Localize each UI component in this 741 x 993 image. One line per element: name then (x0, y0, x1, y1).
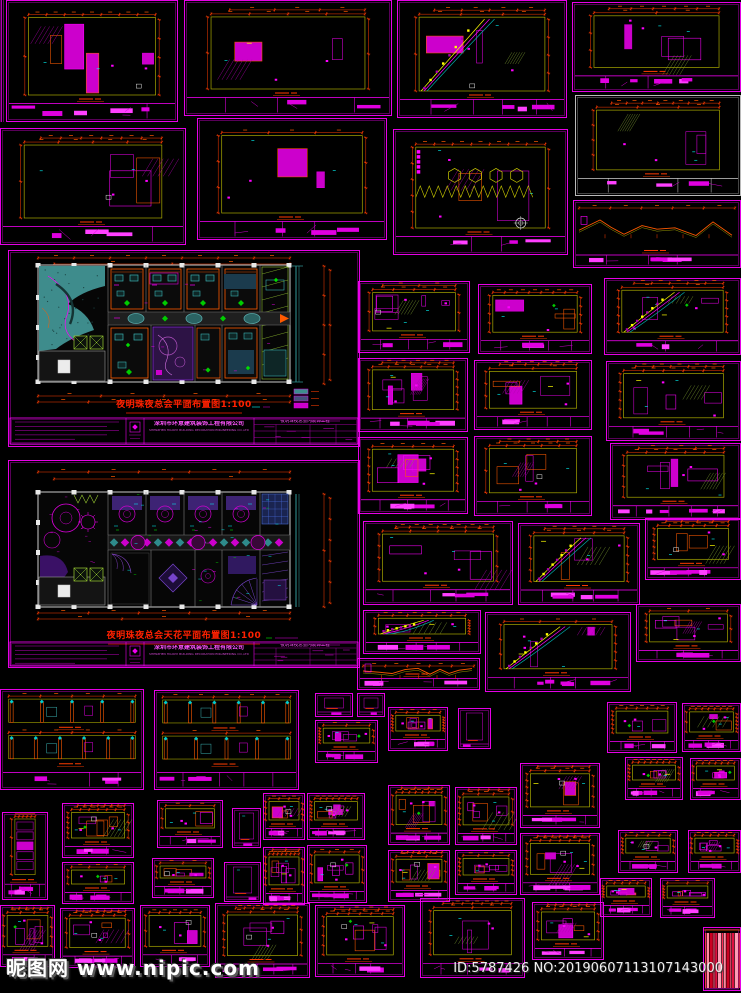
cad-sheet-swatch (703, 927, 741, 991)
cad-sheet-elev (625, 757, 683, 800)
cad-sheet-elev (606, 361, 741, 441)
plan2-title: 夜明珠夜总会天花平面布置图1:100 (8, 632, 360, 641)
cad-sheet-elev (636, 604, 741, 662)
cad-sheet-elev (363, 521, 513, 605)
cad-sheet-tiny (357, 693, 385, 717)
nipic-watermark: 昵图网www.nipic.com (6, 952, 260, 981)
nipic-site-name: 昵图网 (6, 956, 69, 980)
cad-sheet-section (573, 200, 741, 268)
cad-sheet-elev (315, 720, 378, 763)
cad-sheet-elev (610, 443, 741, 520)
image-id-watermark: ID:5787426 NO:20190607113107143000 (453, 961, 723, 976)
cad-sheet-elev (6, 0, 178, 122)
cad-sheet-elev (197, 118, 387, 240)
cad-sheet-elev (645, 518, 741, 580)
cad-sheet-tiny (232, 808, 261, 848)
cad-sheet-elev (388, 785, 450, 845)
cad-sheet-long2 (0, 689, 144, 790)
cad-sheet-elev (455, 850, 517, 895)
cad-sheet-tall (2, 812, 48, 900)
cad-sheet-elev (358, 281, 470, 353)
cad-sheet-elev (0, 128, 186, 245)
cad-sheet-elev (358, 358, 468, 432)
cad-sheet-elev (682, 703, 741, 752)
cad-sheet-tiny (224, 862, 261, 902)
cad-sheet-elev (618, 830, 678, 873)
cad-sheet-elev (157, 800, 223, 848)
cad-sheet-elevH (393, 129, 568, 255)
cad-sheet-section (357, 658, 480, 690)
cad-sheet-elev (575, 95, 741, 196)
cad-sheet-elev (184, 0, 392, 116)
cad-sheet-elev (307, 845, 367, 903)
cad-sheet-tiny (458, 708, 491, 749)
cad-sheet-plan2: 夜明珠夜总会天花平面布置图1:100深圳市环意建筑装饰工程有限公司SHENZHE… (8, 460, 360, 668)
cad-sheet-elev (607, 702, 677, 753)
title-block-company-en: SHENZHEN HUANYI BUILDING DECORATION ENGI… (145, 429, 253, 432)
cad-sheet-elevC (604, 278, 741, 355)
cad-sheet-plan1: 夜明珠夜总会平面布置图1:100深圳市环意建筑装饰工程有限公司SHENZHEN … (8, 250, 360, 447)
cad-sheet-elev (263, 793, 305, 840)
cad-sheet-elev (690, 758, 741, 800)
cad-sheet-elev (358, 437, 468, 514)
cad-sheet-elev (455, 787, 517, 845)
cad-sheet-elev (474, 360, 592, 430)
cad-sheet-long2 (154, 690, 299, 790)
title-block-company-cn: 深圳市环意建筑装饰工程有限公司 (144, 645, 254, 651)
cad-sheet-elev (152, 858, 214, 898)
cad-sheet-elev (388, 707, 448, 751)
cad-sheet-elev (532, 902, 604, 960)
title-block-project: 夜明珠夜总会内装饰工程 (256, 644, 354, 649)
cad-sheet-elev (307, 793, 365, 840)
cad-sheet-elev (520, 763, 600, 828)
cad-sheet-elev (520, 833, 600, 895)
cad-sheet-elevC (363, 610, 481, 654)
cad-sheet-tiny (315, 693, 353, 717)
nipic-site-url: www.nipic.com (77, 956, 260, 980)
cad-sheet-elevC (397, 0, 567, 118)
cad-drawing-collage: 夜明珠夜总会天花平面布置图1:100深圳市环意建筑装饰工程有限公司SHENZHE… (0, 0, 741, 993)
title-block-company-en: SHENZHEN HUANYI BUILDING DECORATION ENGI… (145, 653, 253, 656)
cad-sheet-elev (263, 847, 305, 905)
cad-sheet-elev (62, 803, 134, 858)
cad-sheet-elev (474, 436, 592, 516)
cad-sheet-elev (388, 850, 450, 902)
title-block-company-cn: 深圳市环意建筑装饰工程有限公司 (144, 421, 254, 427)
cad-sheet-elev (600, 878, 652, 917)
cad-sheet-elev (62, 862, 134, 904)
cad-sheet-elev (572, 2, 741, 92)
cad-sheet-elevC (518, 523, 640, 605)
cad-sheet-edge (0, 0, 5, 122)
cad-sheet-elev (660, 878, 715, 918)
cad-sheet-elevC (485, 612, 631, 692)
cad-sheet-elev (478, 284, 592, 354)
title-block-project: 夜明珠夜总会内装饰工程 (256, 420, 354, 425)
plan1-title: 夜明珠夜总会平面布置图1:100 (8, 401, 360, 410)
cad-sheet-elev (688, 830, 741, 873)
cad-sheet-elev (315, 905, 405, 977)
